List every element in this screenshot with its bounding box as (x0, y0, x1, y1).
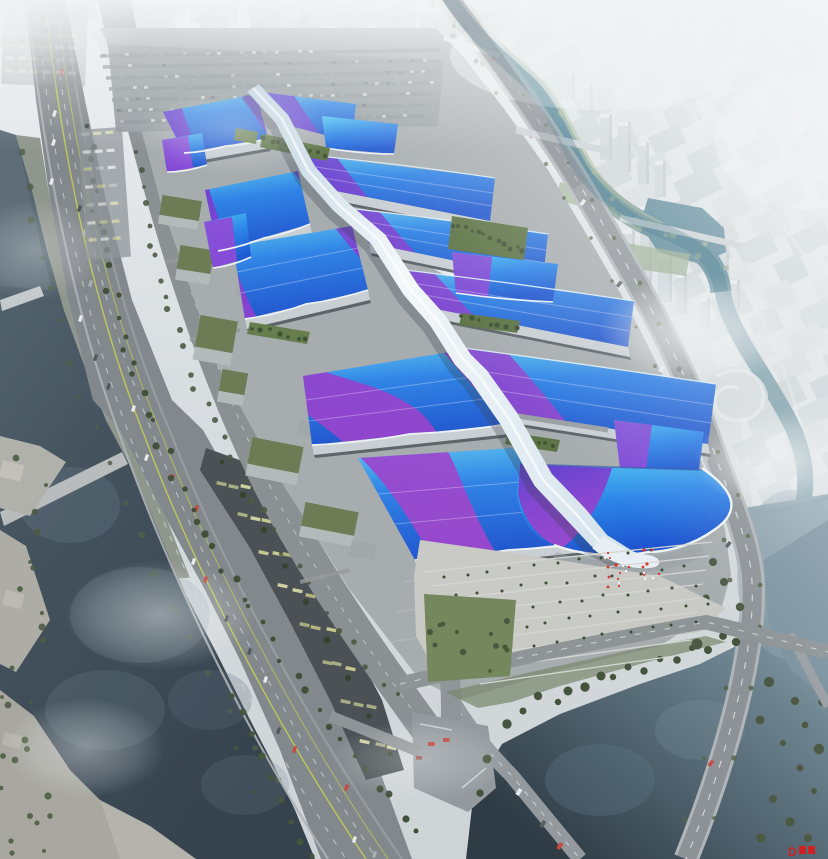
svg-text:D: D (788, 845, 797, 859)
